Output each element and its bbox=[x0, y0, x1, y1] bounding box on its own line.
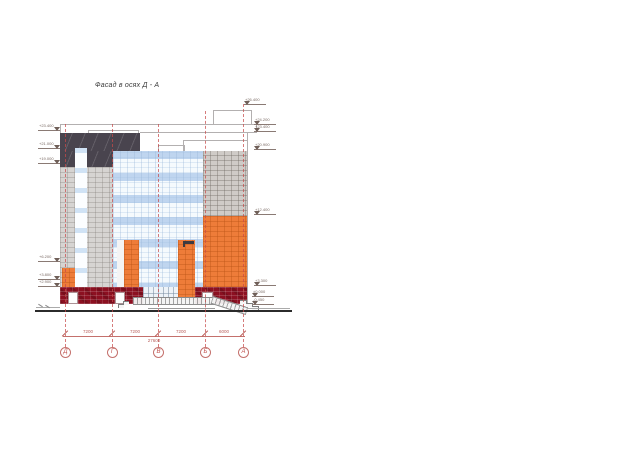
elevation-value: +2.900 bbox=[39, 279, 51, 284]
drawing-title: Фасад в осях Д - А bbox=[95, 82, 159, 89]
dimension-value: 7200 bbox=[78, 329, 98, 334]
elevation-drawing-sheet: Фасад в осях Д - А bbox=[0, 0, 640, 452]
elevation-marker-icon: -0.450 bbox=[252, 297, 274, 305]
elevation-marker-icon: +19.000 bbox=[38, 156, 60, 164]
elevation-marker-icon: +23.400 bbox=[254, 124, 276, 132]
dimension-value: 7200 bbox=[125, 329, 145, 334]
axis-bubble-a: А bbox=[238, 347, 249, 358]
ground-line bbox=[35, 310, 292, 312]
axis-line-a bbox=[243, 104, 244, 347]
axis-bubble-d: Д bbox=[60, 347, 71, 358]
orange-accent-panel bbox=[62, 268, 75, 288]
axis-bubble-b: Б bbox=[200, 347, 211, 358]
building-right-edge bbox=[247, 132, 248, 304]
wall-sign-glyph-tail bbox=[183, 241, 185, 247]
right-tower-masonry bbox=[203, 151, 247, 216]
axis-bubble-g: Г bbox=[107, 347, 118, 358]
elevation-marker-icon: +2.900 bbox=[38, 279, 60, 287]
right-tower-orange-block bbox=[203, 216, 247, 287]
elevation-value: +6.200 bbox=[39, 254, 51, 259]
dark-parapet-block-upper bbox=[60, 133, 140, 151]
axis-line-v bbox=[158, 124, 159, 347]
elevation-value: +23.400 bbox=[39, 123, 54, 128]
elevation-marker-icon: +3.300 bbox=[254, 278, 276, 286]
elevation-marker-icon: +26.400 bbox=[244, 97, 266, 105]
elevation-marker-icon: ±0.000 bbox=[252, 289, 274, 297]
axis-line-d bbox=[65, 124, 66, 347]
entrance-platform-line bbox=[133, 304, 215, 305]
penthouse-outline bbox=[213, 110, 252, 125]
base-window-1 bbox=[68, 292, 78, 304]
glazed-slot-strip bbox=[75, 148, 87, 287]
elevation-value: +19.000 bbox=[39, 156, 54, 161]
elevation-marker-icon: +21.000 bbox=[38, 141, 60, 149]
elevation-value: +3.800 bbox=[39, 272, 51, 277]
dimension-value: 7200 bbox=[171, 329, 191, 334]
elevation-marker-icon: +20.900 bbox=[254, 142, 276, 150]
left-step-2 bbox=[118, 304, 124, 308]
white-pier bbox=[117, 240, 124, 287]
axis-bubble-v: В bbox=[153, 347, 164, 358]
terrain-line-right bbox=[247, 308, 290, 309]
entrance-orange-column-right bbox=[178, 240, 195, 300]
overall-dimension-value: 27600 bbox=[136, 338, 172, 343]
elevation-marker-icon: +12.400 bbox=[254, 207, 276, 215]
elevation-value: +21.000 bbox=[39, 141, 54, 146]
axis-line-g bbox=[112, 124, 113, 347]
elevation-marker-icon: +6.200 bbox=[38, 254, 60, 262]
elevation-marker-icon: +23.400 bbox=[38, 123, 60, 131]
dimension-value: 6000 bbox=[214, 329, 234, 334]
axis-line-b bbox=[205, 111, 206, 347]
